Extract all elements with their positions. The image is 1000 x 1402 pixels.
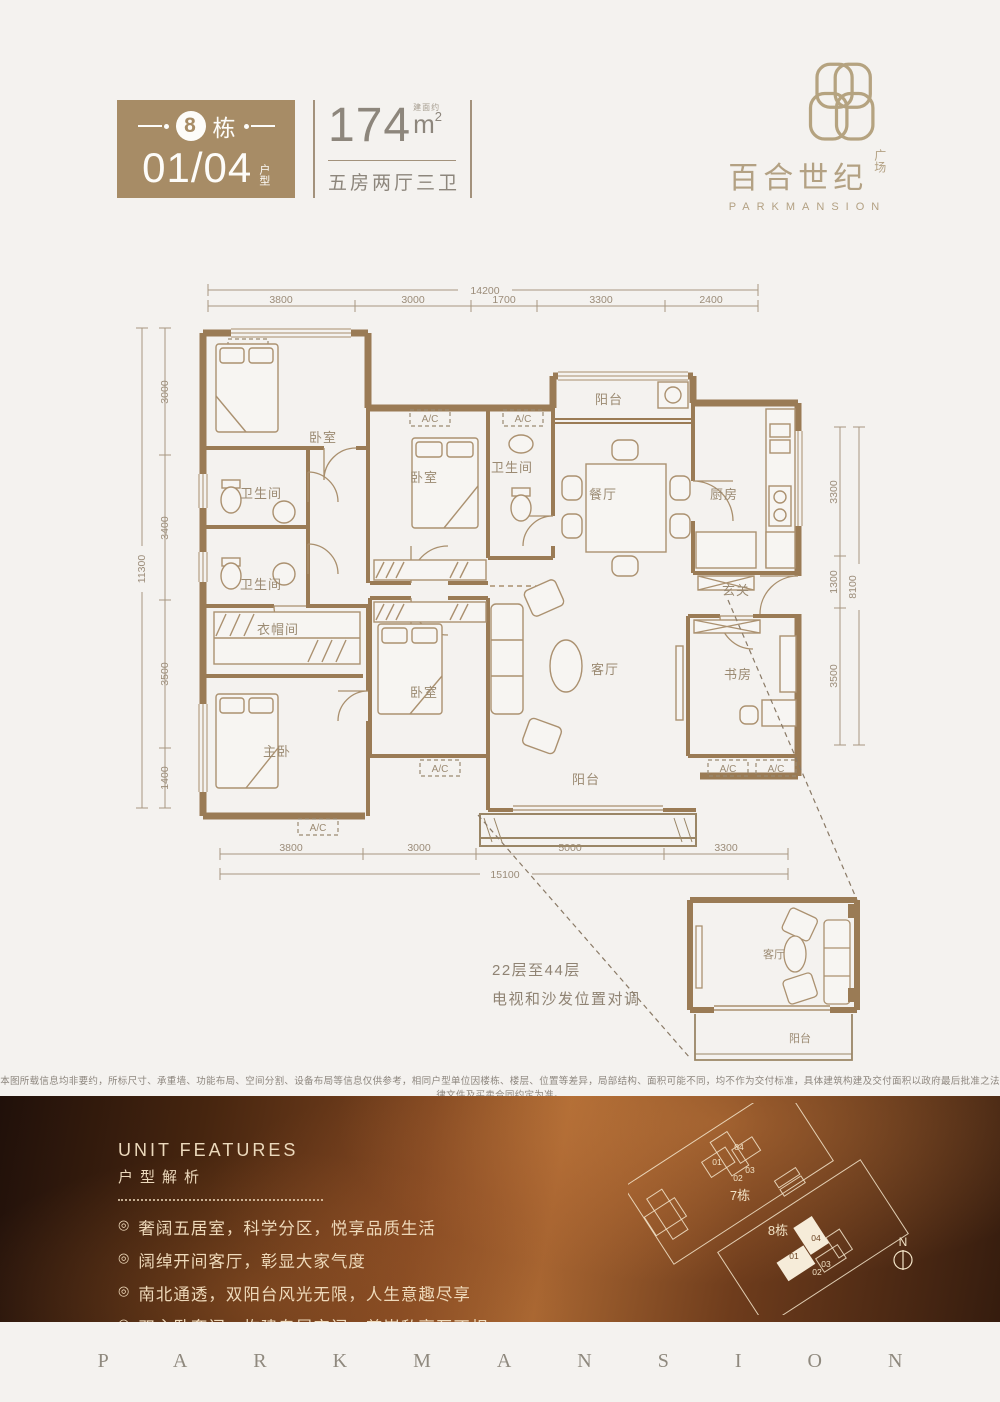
dim-top-seg-0: 3800 xyxy=(269,294,293,306)
dim-bottom-seg-1: 3000 xyxy=(407,842,431,854)
dim-top-seg-3: 3300 xyxy=(589,294,613,306)
sofa-icon xyxy=(491,578,582,755)
bed-icon xyxy=(378,624,442,714)
inset-plan: 客厅 阳台 xyxy=(682,892,868,1068)
wardrobe-icon xyxy=(374,560,486,580)
site-plan-svg: 7栋 8栋 01 04 03 02 03 02 01 04 N xyxy=(628,1103,920,1315)
siteplan-unit-labels: 01 04 03 02 03 02 01 04 xyxy=(712,1142,831,1277)
header-divider-1 xyxy=(313,100,315,198)
room-label-balcony-top: 阳台 xyxy=(595,392,623,407)
ac-label: A/C xyxy=(720,764,737,775)
wardrobe-icon xyxy=(214,612,360,664)
brand-logo: 百合世纪广场 PARKMANSION xyxy=(700,62,915,213)
building7-label: 7栋 xyxy=(730,1188,750,1203)
room-label-bedroom-bottom: 卧室 xyxy=(410,685,438,700)
dim-top-seg-2: 1700 xyxy=(492,294,516,306)
dim-left-overall: 11300 xyxy=(136,555,148,584)
area-divider-line xyxy=(328,160,456,161)
inset-room-label-balcony: 阳台 xyxy=(789,1031,811,1045)
sink-icon xyxy=(509,435,533,453)
bed-icon xyxy=(216,344,278,432)
toilet-icon xyxy=(511,488,531,521)
dim-left-seg-1: 3400 xyxy=(159,516,171,540)
water-heater-icon xyxy=(658,382,688,408)
badge-ornament-left-icon xyxy=(138,124,169,129)
room-label-study: 书房 xyxy=(724,667,752,682)
room-label-bedroom-top-left: 卧室 xyxy=(309,430,337,445)
building-number: 8 xyxy=(176,111,206,141)
building8-unit-01: 01 xyxy=(789,1251,799,1261)
site-plan: 7栋 8栋 01 04 03 02 03 02 01 04 N xyxy=(628,1103,920,1320)
dim-right-overall: 8100 xyxy=(847,575,859,599)
ac-label: A/C xyxy=(515,414,532,425)
bullet-icon: ◎ xyxy=(118,1215,130,1235)
tv-icon xyxy=(696,926,702,988)
building7-unit-02: 02 xyxy=(733,1173,743,1183)
feature-text: 南北通透，双阳台风光无限，人生意趣尽享 xyxy=(138,1281,471,1305)
feature-band: UNIT FEATURES 户型解析 ◎奢阔五居室，科学分区，悦享品质生活 ◎阔… xyxy=(0,1096,1000,1322)
feature-item: ◎阔绰开间客厅，彰显大家气度 xyxy=(118,1248,498,1272)
sofa-icon xyxy=(781,907,850,1005)
dim-top-seg-4: 2400 xyxy=(699,294,723,306)
dim-left-seg-3: 1400 xyxy=(159,766,171,790)
compass-icon: N xyxy=(894,1235,912,1270)
badge-unit-row: 01/04 户型 xyxy=(142,147,270,189)
tv-icon xyxy=(676,646,683,720)
bullet-icon: ◎ xyxy=(118,1281,130,1301)
bed-icon xyxy=(216,694,278,788)
neighbour-building-footprint xyxy=(637,1186,693,1246)
header-divider-2 xyxy=(470,100,472,198)
brand-name-en: PARKMANSION xyxy=(700,201,915,213)
building8-unit-02: 02 xyxy=(812,1267,822,1277)
features-title-cn: 户型解析 xyxy=(118,1166,498,1187)
ac-label: A/C xyxy=(422,414,439,425)
compass-label: N xyxy=(899,1235,908,1249)
layout-description: 五房两厅三卫 xyxy=(328,168,456,195)
floorplan: 14200 3800 3000 1700 3300 2400 11300 300… xyxy=(128,276,876,908)
dim-bottom-overall: 15100 xyxy=(490,869,519,881)
room-label-bath-upper: 卫生间 xyxy=(240,486,282,501)
building-suffix: 栋 xyxy=(213,109,237,143)
feature-text: 奢阔五居室，科学分区，悦享品质生活 xyxy=(138,1215,436,1239)
ac-label: A/C xyxy=(310,823,327,834)
dim-right-seg-1: 1300 xyxy=(828,570,840,594)
balcony-rails xyxy=(480,814,696,846)
dim-left-seg-0: 3000 xyxy=(159,380,171,404)
toilet-icon xyxy=(221,558,241,589)
dim-right-seg-0: 3300 xyxy=(828,480,840,504)
floorplan-svg: 14200 3800 3000 1700 3300 2400 11300 300… xyxy=(128,276,876,908)
unit-type-label: 户型 xyxy=(257,164,270,186)
logo-knot-icon xyxy=(804,62,882,142)
badge-ornament-right-icon xyxy=(244,124,275,129)
room-label-master-bedroom: 主卧 xyxy=(263,744,291,759)
building7-unit-03: 03 xyxy=(745,1165,755,1175)
inset-balcony-rail xyxy=(695,1014,852,1060)
badge-building-row: 8 栋 xyxy=(138,109,275,143)
room-label-bath-small: 卫生间 xyxy=(491,460,533,475)
wardrobe-icon xyxy=(374,602,486,622)
feature-item: ◎奢阔五居室，科学分区，悦享品质生活 xyxy=(118,1215,498,1239)
toilet-icon xyxy=(221,480,241,513)
room-label-bath-lower: 卫生间 xyxy=(240,577,282,592)
room-labels: 卧室 卫生间 卫生间 卧室 卫生间 阳台 餐厅 厨房 玄关 衣帽间 主卧 卧室 … xyxy=(240,392,752,787)
area-value: 174 xyxy=(328,102,411,150)
dim-bottom-seg-0: 3800 xyxy=(279,842,303,854)
inset-plan-svg: 客厅 阳台 xyxy=(682,892,868,1068)
building8-unit-03: 03 xyxy=(821,1259,831,1269)
dim-right-seg-2: 3500 xyxy=(828,664,840,688)
room-label-cloakroom: 衣帽间 xyxy=(257,622,299,637)
ac-label: A/C xyxy=(768,764,785,775)
footer-brand: PARKMANSION xyxy=(0,1350,1000,1373)
inset-note: 22层至44层 电视和沙发位置对调 xyxy=(492,957,641,1014)
building7-unit-04: 04 xyxy=(734,1142,744,1152)
unit-numbers: 01/04 xyxy=(142,147,252,189)
building8-label: 8栋 xyxy=(768,1223,788,1238)
inset-room-label-living: 客厅 xyxy=(763,947,785,961)
footer: PARKMANSION xyxy=(0,1322,1000,1402)
dim-left-seg-2: 3500 xyxy=(159,662,171,686)
area-unit: m xyxy=(413,113,435,136)
inset-note-line1: 22层至44层 xyxy=(492,957,641,986)
inset-note-line2: 电视和沙发位置对调 xyxy=(492,986,641,1015)
feature-text: 阔绰开间客厅，彰显大家气度 xyxy=(138,1248,366,1272)
dim-bottom-seg-2: 5000 xyxy=(558,842,582,854)
room-label-living: 客厅 xyxy=(591,662,619,677)
building8-unit-04: 04 xyxy=(811,1233,821,1243)
feature-item: ◎南北通透，双阳台风光无限，人生意趣尽享 xyxy=(118,1281,498,1305)
room-label-bedroom-middle: 卧室 xyxy=(410,470,438,485)
building7-footprint xyxy=(695,1122,764,1186)
room-label-dining: 餐厅 xyxy=(589,487,617,502)
room-label-balcony-bottom: 阳台 xyxy=(572,772,600,787)
dim-bottom-seg-3: 3300 xyxy=(714,842,738,854)
building-badge: 8 栋 01/04 户型 xyxy=(117,100,295,198)
ac-label: A/C xyxy=(432,764,449,775)
dining-table-icon xyxy=(562,440,690,576)
building7-unit-01: 01 xyxy=(712,1157,722,1167)
sink-icon xyxy=(273,501,295,523)
features-divider xyxy=(118,1199,323,1201)
brand-name-suffix: 广场 xyxy=(871,149,887,173)
brand-name-cn: 百合世纪 xyxy=(728,153,868,197)
dim-top-seg-1: 3000 xyxy=(401,294,425,306)
room-label-foyer: 玄关 xyxy=(722,583,750,598)
area-unit-sup: 2 xyxy=(435,111,442,123)
bullet-icon: ◎ xyxy=(118,1248,130,1268)
area-block: 174 建面约 m2 五房两厅三卫 xyxy=(328,102,456,195)
room-label-kitchen: 厨房 xyxy=(710,487,738,502)
features-title-en: UNIT FEATURES xyxy=(118,1140,498,1161)
